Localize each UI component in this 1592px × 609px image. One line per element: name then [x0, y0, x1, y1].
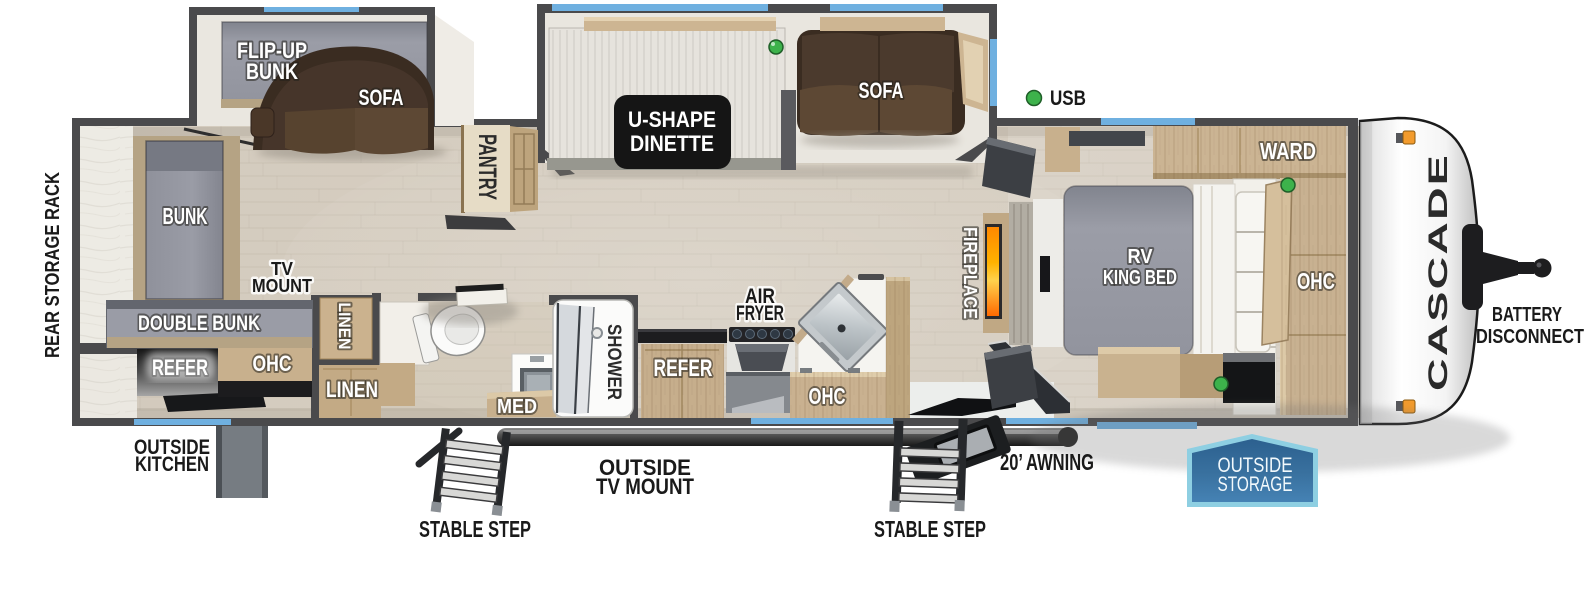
svg-text:BUNK: BUNK: [163, 203, 208, 229]
svg-text:KITCHEN: KITCHEN: [135, 453, 209, 476]
svg-text:FRYER: FRYER: [736, 302, 784, 325]
svg-text:DISCONNECT: DISCONNECT: [1476, 326, 1584, 348]
svg-text:MOUNT: MOUNT: [252, 276, 312, 296]
svg-text:SOFA: SOFA: [359, 85, 404, 110]
svg-text:REAR STORAGE RACK: REAR STORAGE RACK: [42, 172, 64, 358]
svg-text:20’ AWNING: 20’ AWNING: [1000, 449, 1094, 475]
svg-text:WARD: WARD: [1260, 138, 1316, 164]
svg-text:PANTRY: PANTRY: [473, 134, 501, 200]
svg-text:STABLE STEP: STABLE STEP: [419, 516, 531, 542]
svg-text:REFER: REFER: [152, 355, 208, 380]
svg-text:RV: RV: [1128, 246, 1154, 268]
svg-text:BUNK: BUNK: [246, 59, 298, 84]
svg-text:SOFA: SOFA: [859, 78, 904, 103]
svg-text:OHC: OHC: [809, 383, 846, 409]
svg-text:USB: USB: [1050, 87, 1086, 110]
svg-text:BATTERY: BATTERY: [1492, 304, 1562, 326]
svg-text:DINETTE: DINETTE: [630, 131, 714, 156]
svg-text:SHOWER: SHOWER: [603, 324, 624, 400]
svg-text:TV MOUNT: TV MOUNT: [596, 474, 694, 499]
svg-text:LINEN: LINEN: [326, 377, 378, 402]
svg-text:FIREPLACE: FIREPLACE: [960, 227, 980, 319]
svg-text:DOUBLE BUNK: DOUBLE BUNK: [138, 312, 260, 335]
svg-text:STORAGE: STORAGE: [1218, 473, 1293, 496]
svg-text:CASCADE: CASCADE: [1423, 153, 1453, 391]
svg-text:REFER: REFER: [654, 355, 713, 382]
svg-text:OHC: OHC: [253, 351, 292, 376]
svg-text:MED: MED: [497, 396, 537, 418]
svg-text:OHC: OHC: [1297, 268, 1335, 294]
svg-text:LINEN: LINEN: [335, 303, 354, 350]
svg-text:KING BED: KING BED: [1103, 267, 1177, 289]
svg-text:STABLE STEP: STABLE STEP: [874, 516, 986, 542]
svg-text:U-SHAPE: U-SHAPE: [628, 107, 716, 132]
